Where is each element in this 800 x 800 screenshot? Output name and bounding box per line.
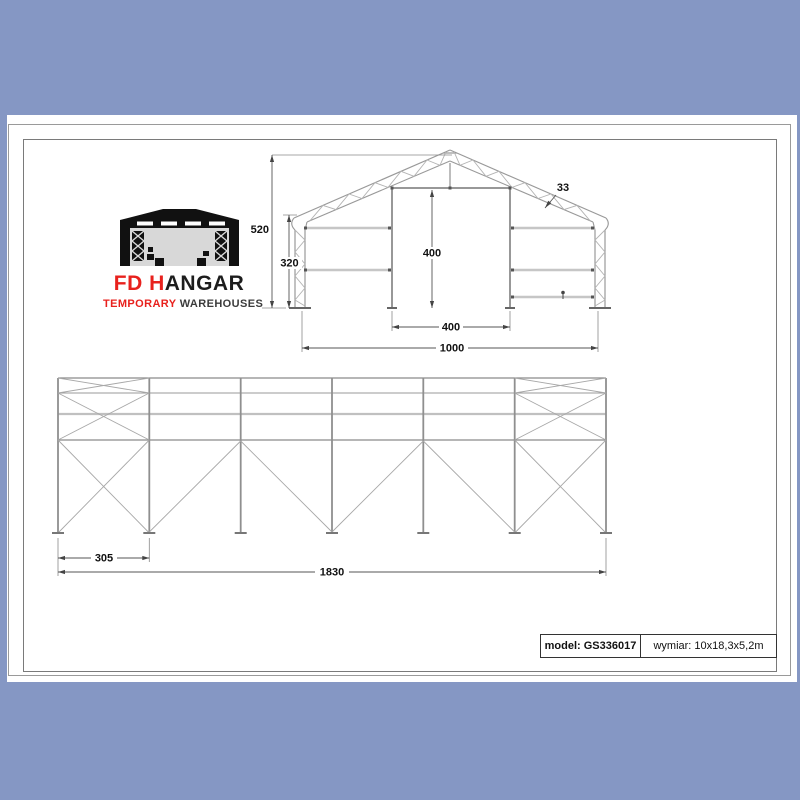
side-columns: [58, 378, 606, 533]
end-bay-x-bracing-left: [58, 378, 149, 533]
roof-truss-webbing-right: [454, 152, 590, 221]
dim-total-height: 520: [251, 224, 269, 236]
title-block-size: wymiar: 10x18,3x5,2m: [641, 635, 776, 657]
end-bay-x-bracing-right: [515, 378, 606, 533]
dim-door-height: 400: [423, 248, 441, 260]
dimension-label-backgrounds-front: [277, 247, 468, 354]
dim-door-width: 400: [442, 322, 460, 334]
dim-truss-depth: 33: [557, 182, 569, 194]
front-elevation-view: 520 320 400 400 1000 33: [251, 150, 611, 355]
dim-first-bay-width: 305: [95, 553, 113, 565]
dim-total-width: 1000: [440, 343, 464, 355]
dim-eave-height: 320: [280, 258, 298, 270]
gate-frame: [392, 188, 510, 308]
dim-total-length: 1830: [320, 567, 344, 579]
technical-drawing: 520 320 400 400 1000 33 305 1830: [0, 0, 800, 800]
side-elevation-dimensions: 305 1830: [58, 538, 606, 579]
dimension-label-backgrounds-side: [91, 552, 349, 578]
side-elevation-view: 305 1830: [52, 378, 612, 579]
title-block: model: GS336017 wymiar: 10x18,3x5,2m: [540, 634, 777, 658]
front-elevation-dimensions: 520 320 400 400 1000 33: [251, 155, 598, 355]
roof-truss-webbing-left: [310, 152, 446, 221]
lattice-column-webbing-right: [595, 230, 605, 306]
title-block-model: model: GS336017: [541, 635, 641, 657]
wall-girts: [306, 228, 594, 297]
